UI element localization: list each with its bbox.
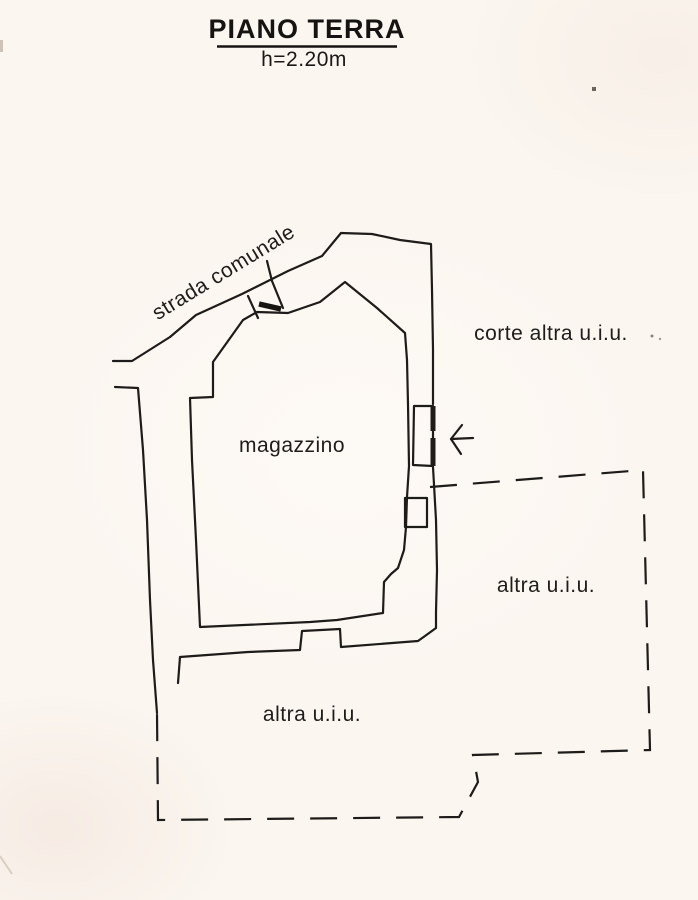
scan-speck xyxy=(651,335,654,338)
courtyard-other-unit-label: corte altra u.i.u. xyxy=(474,322,628,345)
height-note: h=2.20m xyxy=(261,48,347,71)
other-unit-bottom-label: altra u.i.u. xyxy=(263,703,361,726)
door-threshold-bar xyxy=(259,304,281,309)
window-niche-2 xyxy=(405,498,427,527)
page-title: PIANO TERRA xyxy=(208,14,405,44)
left-arrow-icon xyxy=(451,425,473,454)
window-niche-1 xyxy=(413,406,433,466)
scan-speck xyxy=(659,338,661,340)
boundary-dashed-line xyxy=(157,470,650,820)
scan-edge-mark xyxy=(0,40,3,52)
scan-speck xyxy=(592,87,596,91)
scan-corner-mark xyxy=(0,856,12,874)
floor-plan-drawing: PIANO TERRA h=2.20m strada comunale maga… xyxy=(0,0,698,900)
left-boundary-wall xyxy=(115,387,157,713)
room-label-magazzino: magazzino xyxy=(239,434,345,457)
other-unit-right-label: altra u.i.u. xyxy=(497,574,595,597)
